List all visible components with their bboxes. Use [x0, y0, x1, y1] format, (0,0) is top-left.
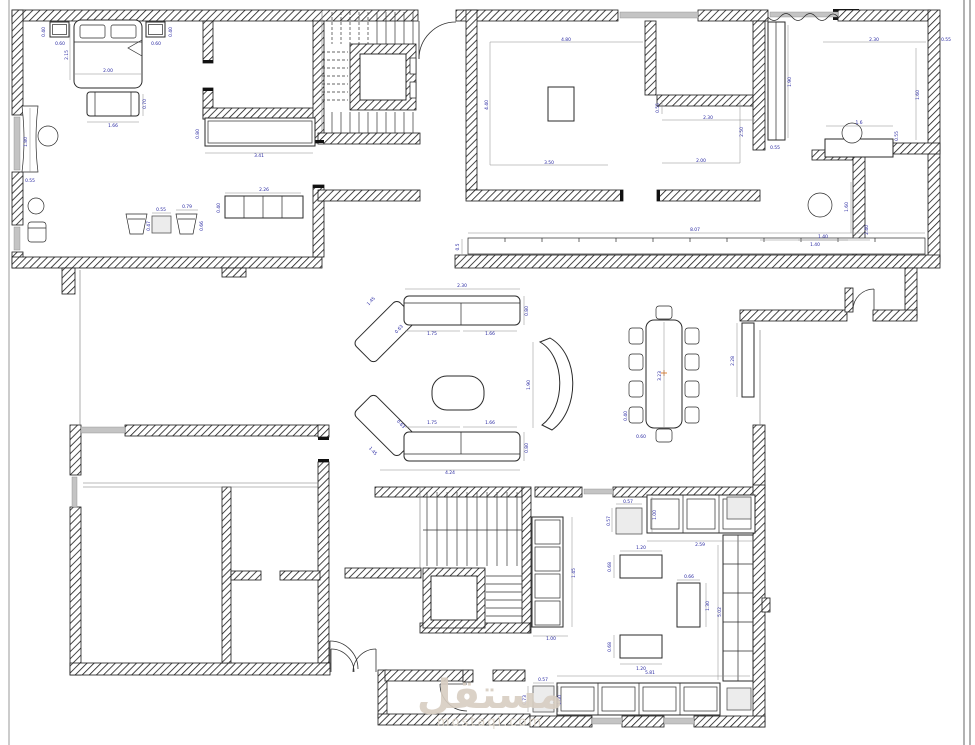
window-kitchen-bottom-1 [592, 718, 622, 724]
dim-label: 1.66 [485, 331, 495, 337]
dim-label: 1.45 [367, 446, 378, 457]
staircase-bottom [423, 492, 522, 628]
kitchen-furniture [532, 495, 755, 715]
kitchen-counter-bottom [557, 683, 720, 715]
doors [330, 21, 874, 711]
dim-label: 5.81 [645, 670, 655, 676]
corner-chair [28, 222, 46, 242]
dining-chair [685, 328, 699, 344]
kitchen-counter-right [723, 535, 753, 681]
dim-label: 0.40 [623, 411, 629, 421]
armchair-1 [126, 214, 147, 234]
dim-label: 0.79 [182, 204, 192, 210]
dining-chair [685, 354, 699, 370]
window-kitchen-bottom-2 [664, 718, 694, 724]
dining-chair [629, 407, 643, 423]
dim-label: 0.40 [41, 27, 47, 37]
curved-bench [540, 338, 573, 430]
dim-label: 0.68 [607, 562, 613, 572]
dining-chair [656, 306, 672, 319]
nightstand-right-inner [149, 25, 163, 35]
dim-label: 8.07 [690, 227, 700, 233]
nightstand-left-inner [53, 25, 67, 35]
dim-label: 4.40 [484, 100, 490, 110]
dim-label: 0.66 [199, 221, 205, 231]
kitchen-island-1 [620, 555, 662, 578]
dim-label: 0.55 [941, 37, 951, 43]
dining-chair [629, 354, 643, 370]
dim-label: 4.24 [445, 470, 455, 476]
majlis-furniture [548, 87, 574, 121]
dim-label: 0.55 [770, 145, 780, 151]
living-furniture [353, 296, 573, 461]
dim-label: 1.60 [844, 202, 850, 212]
dim-label: 2.50 [739, 127, 745, 137]
kitchen-center-island [677, 583, 700, 627]
dim-label: 0.80 [524, 306, 530, 316]
dim-label: 0.60 [55, 41, 65, 47]
door-vestibule [853, 289, 874, 310]
armchair-2 [176, 214, 197, 234]
window-bedroom-left-2 [14, 227, 20, 250]
door-double-hall [331, 649, 376, 672]
dining-chair [685, 407, 699, 423]
wardrobe [768, 22, 785, 140]
planter-shelf [468, 238, 925, 254]
corner-unit-top [727, 497, 751, 519]
dim-label: 1.40 [818, 234, 828, 240]
dim-label: 1.00 [546, 636, 556, 642]
kitchen-appliance [616, 508, 642, 534]
dim-label: 1.6 [856, 120, 863, 126]
dimension-labels: 0.40 0.60 2.15 2.00 0.60 0.40 0.70 1.66 … [23, 27, 951, 705]
dim-label: 1.45 [571, 568, 577, 578]
sideboard [742, 323, 754, 397]
dim-label: 2.15 [64, 50, 70, 60]
dim-label: 3.41 [254, 153, 264, 159]
window-bedroom-left-1 [14, 117, 20, 170]
dim-label: 0.68 [607, 642, 613, 652]
dim-label: 1.90 [787, 77, 793, 87]
dining-chair [629, 328, 643, 344]
dining-set [629, 306, 754, 442]
column [548, 87, 574, 121]
floor-plan-canvas: 0.40 0.60 2.15 2.00 0.60 0.40 0.70 1.66 … [0, 0, 975, 745]
watermark-domain: mostaql.com [437, 715, 543, 730]
dim-label: 2.26 [259, 187, 269, 193]
dresser-cabinet [225, 196, 303, 218]
corner-unit-bottom [727, 688, 751, 710]
dim-label: 0.66 [684, 574, 694, 580]
elevator-top [350, 44, 416, 110]
bed-bench [87, 92, 139, 116]
dim-label: 0.60 [636, 434, 646, 440]
dim-label: 0.55 [655, 103, 661, 113]
pillow [80, 25, 105, 38]
cabinet-by-stairs [532, 517, 563, 627]
staircase-top [322, 12, 416, 133]
dim-label: 1.30 [705, 601, 711, 611]
floor-drain [808, 193, 832, 217]
dim-label: 0.57 [623, 499, 633, 505]
dim-label: 0.60 [151, 41, 161, 47]
dim-label: 0.47 [146, 221, 152, 231]
dim-label: 2.00 [103, 68, 113, 74]
dim-label: 0.40 [216, 203, 222, 213]
floor-plan-page: 0.40 0.60 2.15 2.00 0.60 0.40 0.70 1.66 … [0, 0, 975, 745]
dim-label: 2.30 [457, 283, 467, 289]
watermark: مستقل mostaql.com [417, 672, 563, 730]
window-bottomleft-side [72, 477, 77, 507]
dining-chair [656, 429, 672, 442]
side-table [152, 216, 171, 233]
sofa-top [353, 296, 520, 364]
dim-label: 3.50 [544, 160, 554, 166]
dim-label: 4.80 [561, 37, 571, 43]
corridor-furniture [468, 238, 925, 254]
dim-label: 0.55 [156, 207, 166, 213]
dim-label: 1.90 [526, 380, 532, 390]
dim-label: 2.30 [869, 37, 879, 43]
dim-label: 3.23 [657, 371, 663, 381]
dim-label: 0.57 [606, 516, 612, 526]
dim-label: 1.75 [427, 420, 437, 426]
dim-label: 1.80 [23, 137, 29, 147]
coffee-table [432, 376, 484, 410]
dressing-room-furniture [768, 14, 893, 218]
window-bottomleft-top [81, 427, 125, 433]
dim-label: 0.80 [195, 129, 201, 139]
dim-label: 2.00 [696, 158, 706, 164]
dim-label: 1.40 [810, 242, 820, 248]
dim-label: 2.30 [703, 115, 713, 121]
dim-label: 1.66 [485, 420, 495, 426]
dim-label: 0.80 [524, 443, 530, 453]
door-main-hall [419, 21, 456, 59]
dim-label: 0.5 [455, 243, 461, 250]
kitchen-island-2 [620, 635, 662, 658]
window-kitchen-top [584, 489, 613, 494]
dining-chair [629, 381, 643, 397]
dim-label: 2.28 [730, 356, 736, 366]
dim-label: 0.55 [894, 131, 900, 141]
dim-label: 1.66 [108, 123, 118, 129]
dining-chair [685, 381, 699, 397]
dim-label: 0.55 [25, 178, 35, 184]
dim-label: 0.40 [168, 27, 174, 37]
pillow [111, 25, 136, 38]
stool [28, 198, 44, 214]
console-cabinet [205, 118, 315, 146]
bed [74, 20, 142, 88]
vanity-counter [825, 139, 893, 157]
watermark-title: مستقل [417, 672, 563, 718]
dim-label: 1.75 [427, 331, 437, 337]
window-majlis-top [620, 12, 698, 18]
dim-label: 2.40 [864, 225, 870, 235]
dim-label: 2.59 [695, 542, 705, 548]
dim-label: 1.00 [652, 510, 658, 520]
elevator-bottom [423, 568, 485, 628]
dim-label: 1.45 [366, 296, 377, 307]
mirror [38, 126, 58, 146]
dim-label: 1.20 [636, 545, 646, 551]
dim-label: 1.60 [915, 90, 921, 100]
dim-label: 0.70 [142, 99, 148, 109]
dim-label: 5.02 [717, 607, 723, 617]
